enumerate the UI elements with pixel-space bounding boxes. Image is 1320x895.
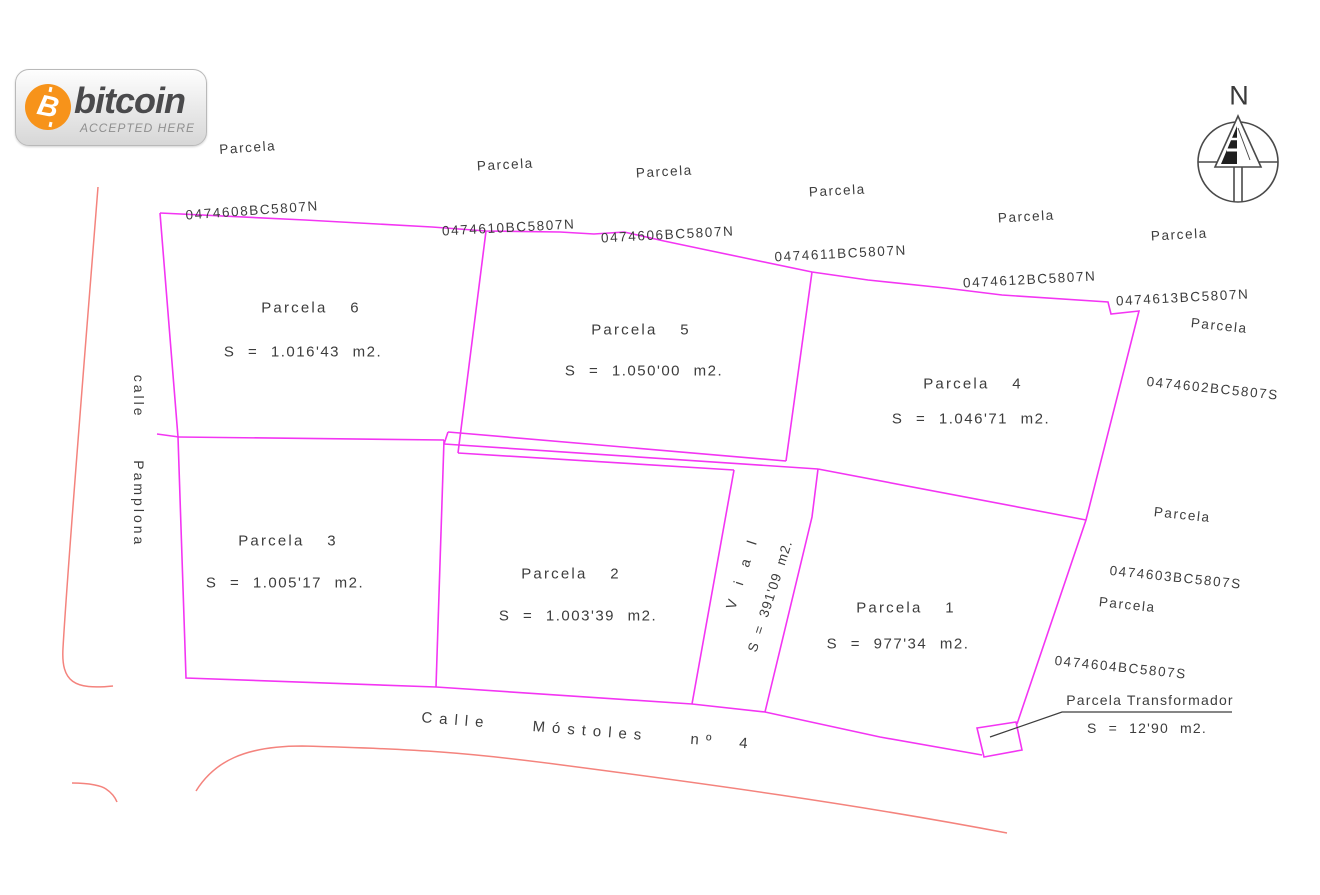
parcel-1-area: S = 977'34 m2. (827, 636, 970, 653)
cadastral-label-ref: 0474608BC5807N (185, 195, 320, 225)
cadastral-label-0474606: Parcela 0474606BC5807N (595, 116, 737, 291)
parcel-3-name: Parcela 3 (238, 533, 338, 550)
cadastral-label-word: Parcela (1060, 587, 1194, 622)
parcel-5-area: S = 1.050'00 m2. (565, 363, 723, 380)
compass-north-label: N (1229, 81, 1249, 112)
cadastral-label-word: Parcela (1112, 221, 1246, 249)
left-edge-tick (157, 434, 179, 437)
cadastral-label-0474611: Parcela 0474611BC5807N (768, 135, 909, 310)
cadastral-label-word: Parcela (438, 151, 572, 179)
bitcoin-tagline: ACCEPTED HERE (80, 121, 195, 135)
cadastral-label-ref: 0474612BC5807N (962, 265, 1096, 293)
parcel-6-area: S = 1.016'43 m2. (224, 344, 382, 361)
cadastral-label-ref: 0474606BC5807N (600, 220, 734, 248)
street-edge-corner-hook (72, 783, 117, 802)
bitcoin-b-symbol: B (21, 80, 76, 135)
cadastral-label-0474602: Parcela 0474602BC5807S (1141, 267, 1291, 448)
parcel-4-name: Parcela 4 (923, 376, 1023, 393)
compass-needle-outline (1215, 116, 1261, 167)
parcel-1-name: Parcela 1 (856, 600, 956, 617)
cadastral-label-word: Parcela (597, 158, 731, 186)
transformer-area: S = 12'90 m2. (1087, 720, 1207, 736)
bitcoin-accepted-badge: B bitcoin ACCEPTED HERE (15, 69, 207, 146)
parcel-6-name: Parcela 6 (261, 300, 361, 317)
cadastral-label-word: Parcela (771, 177, 904, 205)
strip-top-edge (448, 432, 786, 461)
cadastral-label-ref: 0474604BC5807S (1054, 650, 1188, 685)
street-edge-pamplona-west (63, 187, 113, 687)
cadastral-label-word: Parcela (1115, 497, 1249, 532)
bitcoin-coin-icon: B (25, 84, 71, 130)
divider-p3-p2 (436, 440, 444, 687)
cadastral-label-ref: 0474611BC5807N (774, 240, 907, 268)
cadastral-parcel-plan: B bitcoin ACCEPTED HERE N Parcela 047460… (0, 0, 1320, 895)
parcel-5-name: Parcela 5 (591, 322, 691, 339)
cadastral-label-0474610: Parcela 0474610BC5807N (436, 109, 578, 284)
cadastral-label-ref: 0474602BC5807S (1146, 371, 1280, 406)
street-label-calle-pamplona: calle Pamplona (131, 375, 147, 548)
transformer-name: Parcela Transformador (1066, 692, 1234, 708)
street-edge-mostoles-south (196, 746, 1007, 833)
bitcoin-brand-text: bitcoin (74, 80, 185, 122)
cadastral-label-word: Parcela (959, 203, 1093, 231)
transformer-plot-outline (977, 722, 1022, 757)
divider-p4-p1 (818, 469, 1086, 520)
cadastral-label-ref: 0474610BC5807N (441, 213, 575, 241)
cadastral-label-word: Parcela (1152, 308, 1286, 343)
parcel-2-name: Parcela 2 (521, 566, 621, 583)
divider-p6-p3 (178, 437, 444, 440)
cadastral-label-0474612: Parcela 0474612BC5807N (957, 161, 1099, 336)
parcel-3-area: S = 1.005'17 m2. (206, 575, 364, 592)
parcel-4-area: S = 1.046'71 m2. (892, 411, 1050, 428)
parcel2-top-edge (458, 453, 734, 470)
parcel-2-area: S = 1.003'39 m2. (499, 608, 657, 625)
